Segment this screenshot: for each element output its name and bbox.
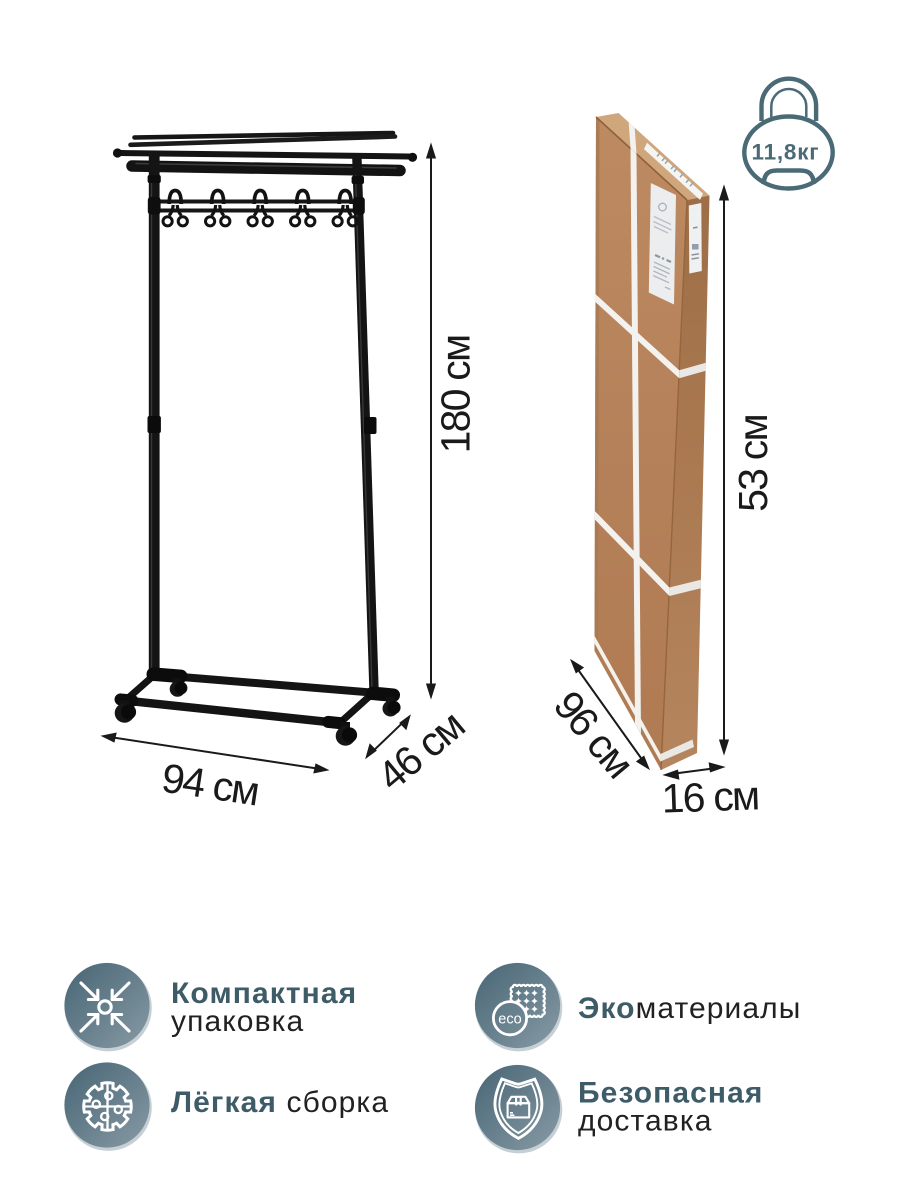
svg-text:eco: eco xyxy=(498,1012,521,1028)
svg-text:Экоматериалы: Экоматериалы xyxy=(578,992,801,1025)
svg-text:16 см: 16 см xyxy=(661,772,759,821)
svg-text:Лёгкая сборка: Лёгкая сборка xyxy=(171,1086,389,1119)
svg-text:180 см: 180 см xyxy=(433,336,479,454)
svg-text:11,8кг: 11,8кг xyxy=(752,140,820,165)
svg-text:упаковка: упаковка xyxy=(171,1005,304,1038)
svg-text:53 см: 53 см xyxy=(730,415,776,512)
svg-text:доставка: доставка xyxy=(578,1105,712,1138)
